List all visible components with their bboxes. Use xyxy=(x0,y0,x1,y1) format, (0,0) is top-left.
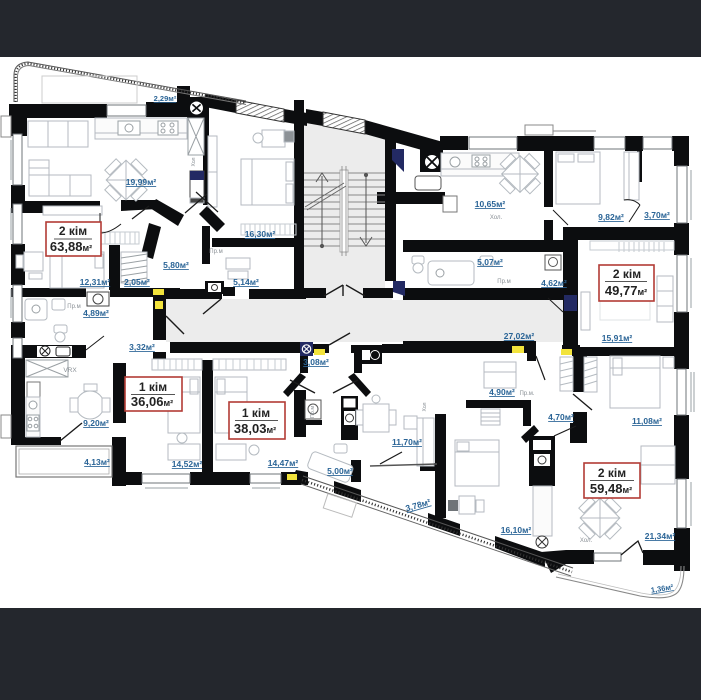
svg-text:3,08м²: 3,08м² xyxy=(303,357,329,367)
svg-text:Пр.м: Пр.м xyxy=(310,406,316,419)
svg-text:VRX: VRX xyxy=(63,367,77,374)
svg-text:Пр.м: Пр.м xyxy=(209,249,222,255)
svg-text:2 кім: 2 кім xyxy=(598,466,626,480)
svg-text:2 кім: 2 кім xyxy=(59,224,87,238)
svg-text:2,05м²: 2,05м² xyxy=(124,277,150,287)
svg-text:4,70м²: 4,70м² xyxy=(548,412,574,422)
svg-text:1 кім: 1 кім xyxy=(242,406,270,420)
svg-text:2 кім: 2 кім xyxy=(613,267,641,281)
svg-text:14,47м²: 14,47м² xyxy=(268,458,299,468)
svg-text:Пр.м.: Пр.м. xyxy=(519,391,534,397)
svg-text:21,34м²: 21,34м² xyxy=(645,531,676,541)
svg-text:Хол.: Хол. xyxy=(580,538,593,544)
svg-text:27,02м²: 27,02м² xyxy=(504,331,535,341)
svg-text:14,52м²: 14,52м² xyxy=(172,459,203,469)
svg-text:11,70м²: 11,70м² xyxy=(392,437,422,447)
svg-text:5,00м²: 5,00м² xyxy=(327,466,353,476)
svg-text:Хол: Хол xyxy=(422,402,428,411)
svg-text:5,14м²: 5,14м² xyxy=(233,277,259,287)
svg-text:5,80м²: 5,80м² xyxy=(163,260,189,270)
svg-text:2,29м²: 2,29м² xyxy=(154,94,177,103)
svg-text:Пр.м: Пр.м xyxy=(67,304,80,310)
svg-text:16,30м²: 16,30м² xyxy=(245,229,276,239)
svg-text:4,13м²: 4,13м² xyxy=(84,457,110,467)
svg-text:9,82м²: 9,82м² xyxy=(598,212,624,222)
svg-text:19,99м²: 19,99м² xyxy=(126,177,157,187)
svg-text:4,62м²: 4,62м² xyxy=(541,278,567,288)
svg-text:11,08м²: 11,08м² xyxy=(632,416,662,426)
svg-text:16,10м²: 16,10м² xyxy=(501,525,532,535)
svg-text:3,70м²: 3,70м² xyxy=(644,210,670,220)
svg-text:Пр.м: Пр.м xyxy=(497,279,510,285)
svg-text:Хол: Хол xyxy=(191,157,197,166)
svg-text:10,65м²: 10,65м² xyxy=(475,199,506,209)
svg-text:5,07м²: 5,07м² xyxy=(477,257,503,267)
svg-text:3,32м²: 3,32м² xyxy=(129,342,155,352)
svg-text:Хол.: Хол. xyxy=(490,215,503,221)
svg-text:4,90м²: 4,90м² xyxy=(489,387,515,397)
svg-text:15,91м²: 15,91м² xyxy=(602,333,633,343)
svg-text:1 кім: 1 кім xyxy=(139,380,167,394)
svg-text:12,31м²: 12,31м² xyxy=(80,277,111,287)
svg-text:9,20м²: 9,20м² xyxy=(83,418,109,428)
svg-text:4,89м²: 4,89м² xyxy=(83,308,109,318)
